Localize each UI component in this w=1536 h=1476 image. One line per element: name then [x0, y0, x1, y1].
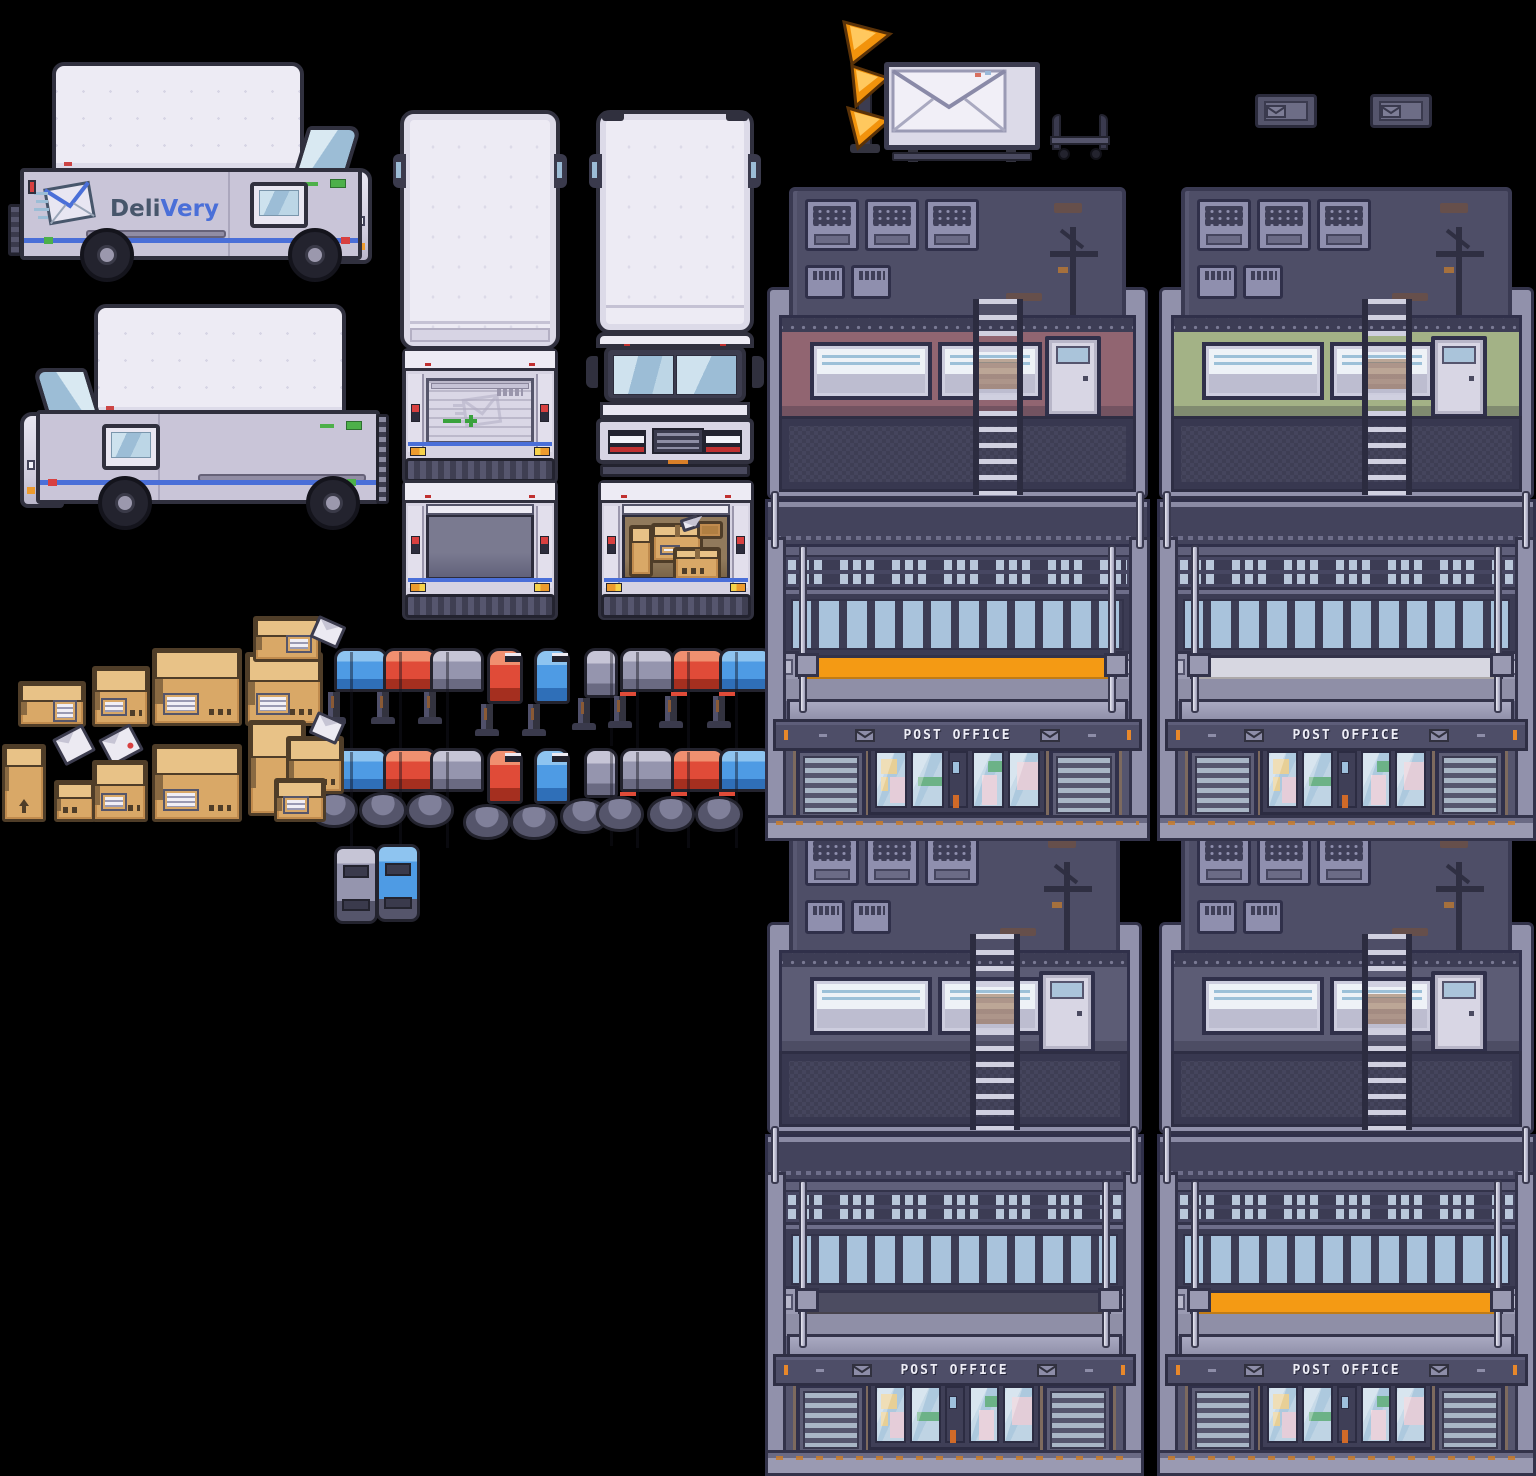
shipping-label [101, 698, 127, 716]
box-tape [277, 798, 282, 811]
box-tape [251, 758, 256, 789]
tail-light [540, 536, 549, 554]
roof-vent-icon [851, 900, 891, 934]
brand-text-dark: Deli [110, 196, 160, 222]
facade-band [1171, 679, 1522, 701]
glass-door-row [1260, 744, 1433, 815]
mailbox-pedestal [695, 796, 743, 832]
dash [1208, 1369, 1216, 1372]
mailbox-body [584, 748, 618, 798]
wheel-hub [305, 245, 325, 265]
building-base [765, 815, 1150, 841]
headlight-cluster [704, 430, 742, 454]
roof-corner-cap [726, 111, 748, 121]
glass-door-pane [1302, 751, 1333, 808]
mailbox-post [578, 698, 590, 730]
front-bumper [596, 418, 754, 464]
air-holes [209, 805, 231, 811]
door-pillar [948, 751, 968, 808]
poster [1273, 1394, 1289, 1409]
mailbox-pedestal [647, 796, 695, 832]
mailbox-top-slot [385, 863, 411, 876]
lower-roof [1171, 1051, 1522, 1127]
mailbox-top-band [384, 897, 412, 909]
storefront [1171, 741, 1522, 823]
building-base [765, 1450, 1144, 1476]
post-office-sign-text: POST OFFICE [1292, 728, 1400, 743]
mailbox-body [620, 648, 674, 692]
mail-plaque [1370, 94, 1432, 128]
ac-unit-icon [865, 834, 919, 886]
post-office-building-4: POST OFFICE [1157, 822, 1536, 1472]
building-front-section: POST OFFICE [1157, 499, 1536, 837]
parcel-box [253, 616, 321, 662]
front-wheel [98, 476, 152, 530]
back-wall [1171, 967, 1522, 1051]
front-wheel [288, 228, 342, 282]
awning-sign: POST OFFICE [1165, 1354, 1528, 1386]
box-tape [95, 786, 100, 805]
building-front-section: POST OFFICE [1157, 1134, 1536, 1472]
roof-vent-icon [1197, 265, 1237, 299]
box-flap [5, 747, 43, 767]
blue-stripe [408, 578, 552, 582]
awning-pole [1191, 545, 1199, 713]
ladder [1362, 299, 1412, 495]
air-holes [290, 709, 312, 715]
box-tape [5, 767, 9, 791]
box-tape [95, 692, 100, 711]
parcel-box [54, 780, 96, 822]
back-wall [779, 332, 1136, 416]
building-front-section: POST OFFICE [765, 499, 1150, 837]
door-pillar [1337, 751, 1357, 808]
shipping-label [256, 693, 290, 715]
envelope-icon [1381, 105, 1401, 118]
facade-corner-column [765, 1172, 786, 1458]
parcel-stack [243, 616, 339, 720]
side-mirror-icon [589, 154, 602, 188]
roof-tail-strip [410, 328, 550, 342]
cargo-box-roof [52, 62, 304, 174]
shipping-label [163, 789, 199, 811]
ac-unit-icon [1197, 199, 1251, 251]
glass-door-pane [969, 1386, 1000, 1443]
tail-light [540, 404, 549, 422]
antenna-icon [1436, 862, 1484, 954]
antenna-icon [1436, 227, 1484, 319]
orange-lamp-icon [1342, 795, 1348, 808]
green-status-lights [304, 179, 350, 188]
poster [1282, 777, 1298, 803]
poster [1309, 1412, 1333, 1421]
shuttered-window [1435, 749, 1505, 821]
facade-band [779, 679, 1136, 701]
grille-icon [652, 428, 704, 454]
cart-deck [1050, 136, 1110, 145]
lower-roof [779, 1051, 1130, 1127]
facade-band [1171, 1314, 1522, 1336]
corner-pole [1163, 1126, 1171, 1184]
facade-corner-column [1515, 1172, 1536, 1458]
roof-edge [601, 483, 751, 503]
corner-pole [1522, 1126, 1530, 1184]
brand-logo-text: DeliVery [110, 196, 219, 222]
glass-door-pane [911, 751, 943, 808]
glass-door-pane [1395, 1386, 1426, 1443]
ribbed-bumper [405, 594, 555, 618]
mailbox-body [534, 748, 570, 804]
shipping-label [286, 635, 312, 653]
parcel-box [18, 681, 86, 727]
roof-deck [789, 187, 1126, 325]
facade-top-bar [1157, 1134, 1536, 1182]
poster [1377, 1396, 1391, 1407]
side-mirror-icon [752, 356, 764, 388]
glass-door-row [1260, 1379, 1433, 1450]
corner-marker [410, 447, 426, 456]
blue-stripe [604, 578, 748, 582]
ac-unit-icon [1257, 834, 1311, 886]
glass-door-row [868, 744, 1047, 815]
shuttered-window [796, 749, 866, 821]
roof-vent-icon [1243, 900, 1283, 934]
roof-vent-icon [1243, 265, 1283, 299]
envelope-icon [1037, 1364, 1057, 1377]
poster [1017, 762, 1040, 790]
glass-door-pane [1395, 751, 1426, 808]
parcel-box [92, 666, 150, 727]
green-plus-icon [465, 415, 477, 427]
blue-stripe [408, 442, 552, 446]
side-mirror-icon [748, 154, 761, 188]
truck-top-rear [400, 110, 560, 350]
rust-stain [1440, 203, 1468, 213]
air-holes [128, 805, 140, 811]
mailbox-blue-side [719, 748, 771, 850]
corner-marker [410, 583, 426, 592]
poster [917, 1412, 941, 1421]
box-tape [21, 702, 27, 716]
parcel-box [152, 744, 242, 822]
back-wall [1171, 332, 1522, 416]
roof-vent-icon [805, 265, 845, 299]
back-door [1039, 971, 1095, 1053]
mailbox-body [620, 748, 674, 792]
mailbox-body [383, 748, 437, 792]
tail-light [411, 404, 420, 422]
mailbox-body [487, 648, 523, 704]
orange-tick [1176, 1365, 1180, 1375]
roof-deck [1181, 187, 1512, 325]
van-side-left [8, 296, 390, 536]
cargo-opening [426, 514, 534, 580]
rolled-door [622, 504, 730, 515]
poster [881, 1394, 897, 1409]
poster [1404, 762, 1426, 790]
awning-pole [1102, 1180, 1110, 1348]
mailbox-body [671, 748, 725, 792]
cart-wheel [1090, 148, 1102, 160]
envelope-icon [855, 729, 875, 742]
box-flap [95, 763, 145, 786]
wheel-hub [323, 493, 343, 513]
mailbox-pedestal [596, 796, 644, 832]
clerestory-windows [781, 1190, 1128, 1224]
orange-tick [1176, 730, 1180, 740]
back-door [1431, 336, 1487, 418]
door-pillar [1337, 1386, 1357, 1443]
dash [816, 1369, 824, 1372]
poster [918, 777, 943, 786]
parcel-box [92, 760, 148, 822]
storefront [1171, 1376, 1522, 1458]
shuttered-window [1188, 1384, 1258, 1456]
lamp-icon [949, 1396, 957, 1409]
glass-door-pane [1302, 1386, 1333, 1443]
glass-door-pane [1003, 1386, 1034, 1443]
post-office-awning: POST OFFICE [1165, 699, 1528, 745]
ac-unit-icon [1317, 199, 1371, 251]
orange-tick [1513, 1365, 1517, 1375]
awning-pole [799, 545, 807, 713]
corner-pole [1130, 1126, 1138, 1184]
building-base [1157, 815, 1536, 841]
antenna-icon [1044, 862, 1092, 954]
ac-unit-icon [1257, 199, 1311, 251]
box-tape [256, 637, 262, 651]
parcel-box [245, 652, 323, 726]
upper-window-row [781, 1222, 1128, 1294]
poster [890, 1412, 906, 1438]
poster [1371, 1410, 1386, 1440]
box-flap [57, 783, 93, 799]
post-office-awning: POST OFFICE [1165, 1334, 1528, 1380]
shuttered-window [1435, 1384, 1505, 1456]
awning-pole [799, 1180, 807, 1348]
shipping-label [53, 700, 77, 722]
mailbox-top-view-gray [334, 846, 378, 924]
window [1202, 977, 1324, 1035]
parcel-box [629, 525, 653, 577]
luggage-cart [1048, 112, 1112, 162]
corner-marker [730, 583, 746, 592]
ribbed-bumper [601, 594, 751, 618]
ac-unit-icon [1197, 834, 1251, 886]
shuttered-window [1049, 749, 1119, 821]
envelope-icon [1429, 1364, 1449, 1377]
envelope-icon [1429, 729, 1449, 742]
van-side-right: DeliVery [8, 52, 378, 288]
billboard-frame [884, 62, 1040, 150]
poster [881, 759, 897, 774]
orange-tick [784, 730, 788, 740]
green-dash [443, 419, 461, 423]
lamp-icon [1341, 761, 1349, 774]
storefront [779, 1376, 1130, 1458]
roof-vent-icon [805, 900, 845, 934]
shuttered-window [796, 1384, 866, 1456]
mailbox-post [528, 704, 540, 736]
tail-light [28, 180, 36, 194]
cargo-opening-loaded [622, 514, 730, 580]
orange-lamp-icon [950, 1430, 956, 1443]
lamp-icon [1341, 1396, 1349, 1409]
dash [819, 734, 827, 737]
glass-door-pane [1361, 1386, 1392, 1443]
envelope-icon [1266, 105, 1286, 118]
mailbox-pedestal [463, 804, 511, 840]
envelope-icon [1040, 729, 1060, 742]
mailbox-post [424, 692, 436, 724]
ac-unit-icon [865, 199, 919, 251]
mailbox-body [334, 648, 388, 692]
truck-rear-open-boxes [598, 480, 754, 620]
box-tape [248, 682, 255, 705]
lamp-icon [952, 761, 960, 774]
corner-pole [771, 1126, 779, 1184]
facade-corner-column [765, 537, 786, 823]
mailbox-post [614, 696, 626, 728]
plaque-inner [1264, 101, 1308, 121]
poster [1377, 761, 1391, 772]
facade-top-bar [765, 499, 1150, 547]
box-flap [95, 669, 147, 692]
upper-window-row [1173, 587, 1520, 659]
poster [1012, 1397, 1034, 1425]
dash [1477, 1369, 1485, 1372]
ladder [970, 934, 1020, 1130]
cart-wheel [1058, 148, 1070, 160]
ac-unit-icon [925, 834, 979, 886]
mailbox-pedestal [406, 792, 454, 828]
upper-window-row [1173, 1222, 1520, 1294]
plaque-inner [1379, 101, 1423, 121]
door-pillar [945, 1386, 965, 1443]
upper-window-row [781, 587, 1134, 659]
shipping-label [283, 796, 309, 814]
box-tape [289, 761, 294, 779]
parcel-box [274, 778, 326, 822]
corner-pole [1136, 491, 1144, 549]
envelope-watermark-icon [453, 390, 507, 434]
envelope-package [52, 724, 96, 766]
mailbox-pedestal [510, 804, 558, 840]
storefront [779, 741, 1136, 823]
building-front-section: POST OFFICE [765, 1134, 1144, 1472]
cab-window [250, 182, 308, 228]
awning-pole [1494, 545, 1502, 713]
post-office-sign-text: POST OFFICE [900, 1363, 1008, 1378]
parcel-stack [244, 720, 338, 817]
rust-stain [1054, 203, 1082, 213]
lower-roof [779, 416, 1136, 492]
mailbox-pedestal [359, 792, 407, 828]
brand-text-blue: Very [160, 196, 218, 222]
post-office-building-3: POST OFFICE [765, 822, 1144, 1472]
poster [1371, 775, 1386, 805]
facade-corner-column [1129, 537, 1150, 823]
clerestory-windows [1173, 1190, 1520, 1224]
glass-door-row [868, 1379, 1041, 1450]
ac-unit-icon [925, 199, 979, 251]
lower-roof [1171, 416, 1522, 492]
up-arrow-icon [17, 799, 31, 813]
window [810, 977, 932, 1035]
post-office-awning: POST OFFICE [773, 699, 1142, 745]
poster [1282, 1412, 1298, 1438]
envelope-icon [1244, 729, 1264, 742]
red-light [48, 479, 57, 486]
mailbox-post [377, 692, 389, 724]
corner-pole [771, 491, 779, 549]
awning-sign: POST OFFICE [1165, 719, 1528, 751]
dash [1085, 1369, 1093, 1372]
glass-door-pane [1008, 751, 1040, 808]
facade-corner-column [1123, 1172, 1144, 1458]
corner-marker [534, 583, 550, 592]
back-door [1045, 336, 1101, 418]
clerestory-windows [781, 555, 1134, 589]
back-wall [779, 967, 1130, 1051]
roof-seam [410, 321, 550, 324]
roof-edge [405, 351, 555, 371]
rear-wheel [80, 228, 134, 282]
roll-up-door [426, 378, 534, 444]
mailbox-body [671, 648, 725, 692]
facade-corner-column [1515, 537, 1536, 823]
chin-skirt [600, 464, 750, 477]
roof-edge [405, 483, 555, 503]
small-text-scribble [497, 389, 523, 396]
post-office-sign-text: POST OFFICE [903, 728, 1011, 743]
orange-lamp-icon [953, 795, 959, 808]
box-flap [256, 619, 318, 637]
post-office-building-1: POST OFFICE [765, 187, 1150, 837]
corner-marker [606, 583, 622, 592]
poster [979, 1410, 994, 1440]
corner-pole [1522, 491, 1530, 549]
orange-lamp-icon [1342, 1430, 1348, 1443]
ac-unit-icon [805, 834, 859, 886]
box-flap [155, 747, 239, 775]
headlight-icon [27, 460, 35, 470]
back-door [1431, 971, 1487, 1053]
side-mirror-icon [393, 154, 406, 188]
windshield [604, 346, 746, 402]
tail-light [736, 536, 745, 554]
facade-top-bar [1157, 499, 1536, 547]
glass-door-pane [1267, 1386, 1298, 1443]
mailbox-body [430, 648, 484, 692]
cab-window [102, 424, 160, 470]
air-holes [130, 710, 142, 716]
mailbox-blue-side [719, 648, 771, 750]
truck-top-front [596, 110, 754, 334]
facade-band [779, 1314, 1130, 1336]
roof-seam [606, 305, 744, 308]
side-mirror-icon [554, 154, 567, 188]
poster [988, 761, 1002, 772]
dash [1088, 734, 1096, 737]
envelope-logo-icon [34, 174, 106, 238]
parcel-box [673, 547, 721, 581]
box-flap [21, 684, 83, 702]
dash [1208, 734, 1216, 737]
rolled-door [426, 504, 534, 515]
shipping-label [163, 693, 199, 715]
ladder [973, 299, 1023, 495]
